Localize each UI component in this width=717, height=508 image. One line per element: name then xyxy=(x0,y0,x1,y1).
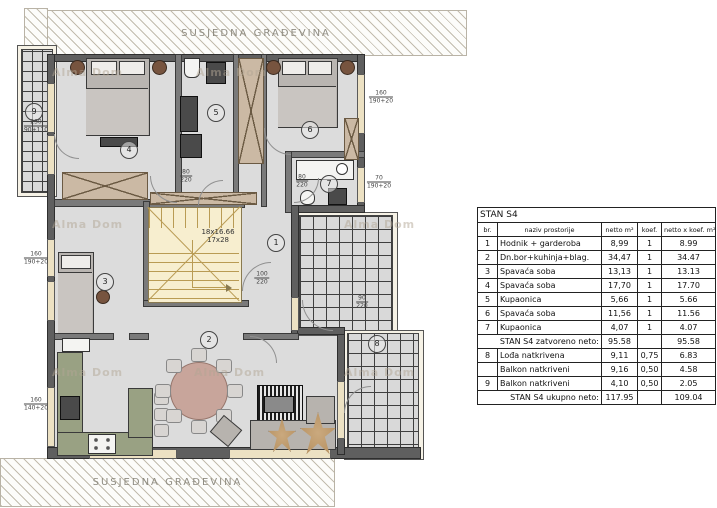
table-head: STAN S4 br. naziv prostorije netto m² ko… xyxy=(478,208,716,237)
watermark: Alma Dom xyxy=(52,366,123,379)
dining-chair-3 xyxy=(191,420,207,434)
result-cell: 95.58 xyxy=(662,335,716,349)
door-hall-loggia xyxy=(292,298,298,330)
dimension-top: 90 xyxy=(356,295,368,303)
table-row: 9Balkon natkriveni4,100,502.05 xyxy=(478,377,716,391)
apartment-table-body: 1Hodnik + garderoba8,9918.992Dn.bor+kuhi… xyxy=(478,237,716,405)
room-name-cell: Balkon natkriveni xyxy=(498,363,602,377)
netto-cell: 17,70 xyxy=(602,279,638,293)
result-cell: 17.70 xyxy=(662,279,716,293)
netto-cell: 13,13 xyxy=(602,265,638,279)
dining-chair-1 xyxy=(227,384,243,398)
room-name-cell: Spavaća soba xyxy=(498,279,602,293)
bed-room4-blanket xyxy=(86,88,148,135)
watermark: Alma Dom xyxy=(194,366,265,379)
neighbor-building-top: SUSJEDNA GRAĐEVINA xyxy=(45,10,467,56)
neighbor-top-label: SUSJEDNA GRAĐEVINA xyxy=(181,28,331,39)
dimension-bottom: 220 xyxy=(180,177,192,184)
dimension-top: 160 xyxy=(24,251,48,259)
kitchen-sink xyxy=(60,396,80,420)
room-number-cell: 1 xyxy=(478,237,498,251)
room-number-cell xyxy=(478,363,498,377)
wall-room7-left xyxy=(286,152,291,212)
room-number-marker: 6 xyxy=(301,121,319,139)
room-number-cell: 2 xyxy=(478,251,498,265)
room-number-marker: 7 xyxy=(320,175,338,193)
window-room4-balcony xyxy=(48,136,54,174)
sofa-chaise xyxy=(306,396,335,424)
summary-label: STAN S4 zatvoreno neto: xyxy=(478,335,602,349)
netto-cell: 8,99 xyxy=(602,237,638,251)
room-name-cell: Lođa natkrivena xyxy=(498,349,602,363)
koef-cell: 1 xyxy=(638,237,662,251)
result-cell: 4.07 xyxy=(662,321,716,335)
bed-room3-pillow xyxy=(61,255,91,269)
netto-cell: 11,56 xyxy=(602,307,638,321)
room-number-cell: 7 xyxy=(478,321,498,335)
neighbor-hatch-corner xyxy=(24,8,48,48)
netto-cell: 34,47 xyxy=(602,251,638,265)
dimension-label: 100220 xyxy=(254,271,269,286)
room-number-marker: 4 xyxy=(120,141,138,159)
watermark: Alma Dom xyxy=(196,66,267,79)
koef-cell: 1 xyxy=(638,251,662,265)
summary-row: STAN S4 ukupno neto:117.95109.04 xyxy=(478,391,716,405)
room-number-marker: 5 xyxy=(207,104,225,122)
dining-chair-7 xyxy=(191,348,207,362)
watermark: Alma Dom xyxy=(344,366,415,379)
koef-cell xyxy=(638,335,662,349)
bed-room6-pillow-2 xyxy=(308,61,332,75)
room-number-cell: 6 xyxy=(478,307,498,321)
netto-cell: 95.58 xyxy=(602,335,638,349)
room-name-cell: Kupaonica xyxy=(498,293,602,307)
dimension-top: 160 xyxy=(369,90,393,98)
lamp-room3 xyxy=(96,290,110,304)
koef-cell: 1 xyxy=(638,265,662,279)
table-header-row: br. naziv prostorije netto m² koef. nett… xyxy=(478,223,716,237)
tv-screen xyxy=(264,396,294,413)
header-br: br. xyxy=(478,223,498,237)
result-cell: 2.05 xyxy=(662,377,716,391)
room-number-cell: 5 xyxy=(478,293,498,307)
summary-label: STAN S4 ukupno neto: xyxy=(478,391,602,405)
staircase-label: 18x16.66 17x28 xyxy=(185,228,251,244)
header-koef: koef. xyxy=(638,223,662,237)
window-bottom-living xyxy=(230,450,330,458)
dimension-label: 160140+20 xyxy=(24,397,48,412)
staircase-arrow-line-h xyxy=(192,287,226,288)
staircase-treads-upper xyxy=(149,208,239,228)
staircase-label-line2: 17x28 xyxy=(185,236,251,244)
dimension-bottom: 220 xyxy=(254,279,269,286)
bed-room6-pillow-1 xyxy=(282,61,306,75)
result-cell: 11.56 xyxy=(662,307,716,321)
lamp-room6-right xyxy=(340,60,355,75)
dining-chair-6 xyxy=(166,359,182,373)
dimension-label: 70190+20 xyxy=(367,175,391,190)
room-name-cell: Spavaća soba xyxy=(498,265,602,279)
dimension-label: 23090+110 xyxy=(24,119,48,134)
room-name-cell: Kupaonica xyxy=(498,321,602,335)
dimension-top: 160 xyxy=(24,397,48,405)
kitchen-stove xyxy=(88,434,116,454)
dimension-bottom: 190+20 xyxy=(24,259,48,266)
room-number-marker: 2 xyxy=(200,331,218,349)
kitchen-bar-chair-3 xyxy=(154,424,169,437)
window-kitchen xyxy=(48,388,54,446)
neighbor-bottom-label: SUSJEDNA GRAĐEVINA xyxy=(93,477,243,488)
dimension-label: 160190+20 xyxy=(369,90,393,105)
staircase-arrow-line-v xyxy=(192,240,193,288)
bed-room3-blanket xyxy=(58,272,92,333)
apartment-area-table: STAN S4 br. naziv prostorije netto m² ko… xyxy=(477,207,716,405)
table-row: 6Spavaća soba11,56111.56 xyxy=(478,307,716,321)
table-row: 4Spavaća soba17,70117.70 xyxy=(478,279,716,293)
room-name-cell: Hodnik + garderoba xyxy=(498,237,602,251)
table-row: 1Hodnik + garderoba8,9918.99 xyxy=(478,237,716,251)
dimension-label: 80220 xyxy=(180,169,192,184)
neighbor-building-bottom: SUSJEDNA GRAĐEVINA xyxy=(0,458,335,507)
result-cell: 8.99 xyxy=(662,237,716,251)
result-cell: 4.58 xyxy=(662,363,716,377)
koef-cell: 0,75 xyxy=(638,349,662,363)
koef-cell: 1 xyxy=(638,279,662,293)
dimension-label: 90220 xyxy=(356,295,368,310)
faucet-room7-icon xyxy=(336,163,348,175)
koef-cell xyxy=(638,391,662,405)
table-row: 3Spavaća soba13,13113.13 xyxy=(478,265,716,279)
staircase-arrow-head xyxy=(226,284,232,292)
wardrobe-room4 xyxy=(62,172,148,200)
room-number-marker: 3 xyxy=(96,273,114,291)
floor-plan-page: SUSJEDNA GRAĐEVINA SUSJEDNA GRAĐEVINA xyxy=(0,0,717,508)
window-room7 xyxy=(358,168,364,202)
table-row: 2Dn.bor+kuhinja+blag.34,47134.47 xyxy=(478,251,716,265)
table-row: 5Kupaonica5,6615.66 xyxy=(478,293,716,307)
koef-cell: 1 xyxy=(638,321,662,335)
netto-cell: 117.95 xyxy=(602,391,638,405)
dimension-bottom: 220 xyxy=(356,303,368,310)
netto-cell: 9,16 xyxy=(602,363,638,377)
lamp-room6-left xyxy=(266,60,281,75)
header-netto: netto m² xyxy=(602,223,638,237)
window-room3-b xyxy=(48,282,54,320)
room-name-cell: Balkon natkriveni xyxy=(498,377,602,391)
dimension-top: 100 xyxy=(254,271,269,279)
netto-cell: 9,11 xyxy=(602,349,638,363)
room-number-cell: 3 xyxy=(478,265,498,279)
window-room3-a xyxy=(48,240,54,276)
netto-cell: 5,66 xyxy=(602,293,638,307)
room-name-cell: Spavaća soba xyxy=(498,307,602,321)
shower-room5 xyxy=(180,134,202,158)
window-balcony9-door xyxy=(48,84,54,132)
dimension-bottom: 190+20 xyxy=(369,98,393,105)
kitchen-peninsula xyxy=(128,388,153,438)
wall-under-bedrooms xyxy=(292,206,364,212)
dimension-bottom: 90+110 xyxy=(24,127,48,134)
summary-row: STAN S4 zatvoreno neto:95.5895.58 xyxy=(478,335,716,349)
dresser-room3 xyxy=(62,338,90,352)
koef-cell: 1 xyxy=(638,293,662,307)
result-cell: 34.47 xyxy=(662,251,716,265)
table-row: 7Kupaonica4,0714.07 xyxy=(478,321,716,335)
staircase-label-line1: 18x16.66 xyxy=(185,228,251,236)
dining-chair-5 xyxy=(155,384,171,398)
table-title-row: STAN S4 xyxy=(478,208,716,223)
koef-cell: 0,50 xyxy=(638,377,662,391)
netto-cell: 4,07 xyxy=(602,321,638,335)
table-row: Balkon natkriveni9,160,504.58 xyxy=(478,363,716,377)
room-number-marker: 1 xyxy=(267,234,285,252)
table-row: 8Lođa natkrivena9,110,756.83 xyxy=(478,349,716,363)
room-name-cell: Dn.bor+kuhinja+blag. xyxy=(498,251,602,265)
dimension-top: 230 xyxy=(24,119,48,127)
wall-room3-bottom-b xyxy=(130,334,148,339)
netto-cell: 4,10 xyxy=(602,377,638,391)
dimension-bottom: 190+20 xyxy=(367,183,391,190)
dimension-label: 160190+20 xyxy=(24,251,48,266)
watermark: Alma Dom xyxy=(52,218,123,231)
koef-cell: 1 xyxy=(638,307,662,321)
table-title: STAN S4 xyxy=(478,208,716,223)
dimension-bottom: 220 xyxy=(296,182,308,189)
dining-chair-4 xyxy=(166,409,182,423)
watermark: Alma Dom xyxy=(344,218,415,231)
staircase-treads-lower xyxy=(149,253,239,300)
lamp-room4-right xyxy=(152,60,167,75)
result-cell: 13.13 xyxy=(662,265,716,279)
cabinet-room5 xyxy=(180,96,198,132)
room-number-cell: 4 xyxy=(478,279,498,293)
result-cell: 5.66 xyxy=(662,293,716,307)
dimension-top: 70 xyxy=(367,175,391,183)
wardrobe-room6 xyxy=(344,118,359,160)
dimension-label: 80220 xyxy=(296,174,308,189)
header-naziv: naziv prostorije xyxy=(498,223,602,237)
room-number-cell: 9 xyxy=(478,377,498,391)
header-netto-koef: netto x koef. m² xyxy=(662,223,716,237)
room-number-marker: 8 xyxy=(368,335,386,353)
result-cell: 6.83 xyxy=(662,349,716,363)
dimension-bottom: 140+20 xyxy=(24,405,48,412)
dimension-top: 80 xyxy=(296,174,308,182)
dimension-top: 80 xyxy=(180,169,192,177)
result-cell: 109.04 xyxy=(662,391,716,405)
room-number-cell: 8 xyxy=(478,349,498,363)
watermark: Alma Dom xyxy=(52,66,123,79)
koef-cell: 0,50 xyxy=(638,363,662,377)
